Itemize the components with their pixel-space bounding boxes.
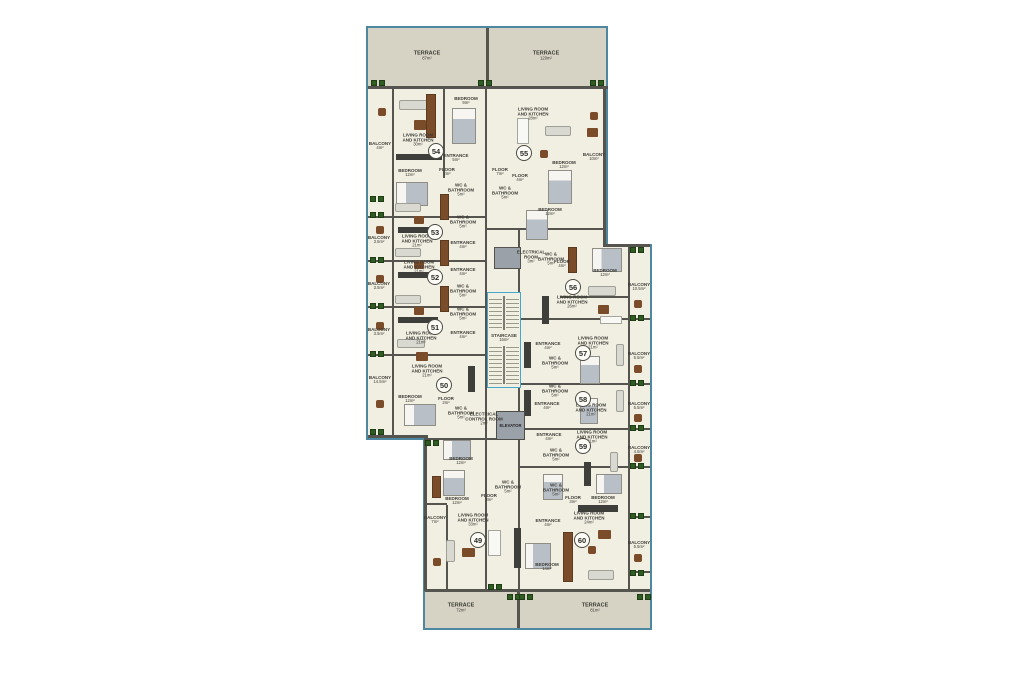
chair [376, 400, 384, 408]
boundary-line [650, 244, 652, 630]
chair [634, 365, 642, 373]
plant-icon [433, 440, 439, 446]
boundary-line [423, 628, 652, 630]
sofa [588, 570, 614, 580]
table [416, 352, 428, 361]
plant-icon [378, 257, 384, 263]
room-label: LIVING ROOM AND KITCHEN26m² [553, 294, 591, 309]
kitchen-counter [584, 462, 591, 486]
plant-icon [378, 212, 384, 218]
room-label: BEDROOM12m² [445, 496, 469, 506]
chair [433, 558, 441, 566]
kitchen-counter [524, 390, 531, 416]
unit-number-60: 60 [574, 532, 590, 548]
plant-icon [379, 80, 385, 86]
chair [634, 554, 642, 562]
room-label: WC & BATHROOM5m² [536, 383, 574, 398]
staircase-label: STAIRCASE15m² [491, 333, 517, 343]
sofa [588, 286, 616, 296]
plant-icon [370, 351, 376, 357]
table [598, 530, 611, 539]
wall-segment [603, 88, 606, 246]
fixture [517, 118, 529, 144]
wardrobe [426, 94, 436, 138]
room-label: BEDROOM12m² [591, 495, 615, 505]
plant-icon [630, 380, 636, 386]
chair [634, 414, 642, 422]
wardrobe [440, 240, 449, 266]
room-label: WC & BATHROOM5m² [444, 306, 482, 321]
room-label: BEDROOM12m² [398, 168, 422, 178]
room-label: LIVING ROOM AND KITCHEN24m² [570, 510, 608, 525]
plant-icon [496, 584, 502, 590]
balcony-label: BALCONY5.5m² [628, 401, 650, 411]
plant-icon [371, 80, 377, 86]
core-room-label: ELECTRICAL ROOM3m² [512, 249, 550, 264]
balcony-label: BALCONY3.5m² [368, 235, 390, 245]
balcony-label: BALCONY3.5m² [368, 281, 390, 291]
plant-icon [425, 440, 431, 446]
plant-icon [630, 513, 636, 519]
balcony-label: BALCONY10m² [583, 152, 605, 162]
room-label: WC & BATHROOM5m² [444, 283, 482, 298]
room-label: BEDROOM12m² [398, 394, 422, 404]
table [414, 216, 424, 224]
chair [634, 300, 642, 308]
plant-icon [630, 425, 636, 431]
plant-icon [378, 429, 384, 435]
plant-icon [598, 80, 604, 86]
plant-icon [645, 594, 651, 600]
room-label: ENTRANCE4m² [450, 267, 475, 277]
balcony-label: BALCONY14.5m² [369, 375, 391, 385]
plant-icon [507, 594, 513, 600]
room-label: ENTRANCE5m² [443, 153, 468, 163]
sofa [616, 344, 624, 366]
plant-icon [638, 380, 644, 386]
table [598, 305, 609, 314]
room-label: WC & BATHROOM5m² [486, 185, 524, 200]
plant-icon [519, 594, 525, 600]
unit-number-52: 52 [427, 269, 443, 285]
wall-segment [425, 589, 650, 592]
kitchen-counter [542, 296, 549, 324]
room-label: ENTRANCE4m² [535, 518, 560, 528]
unit-number-53: 53 [427, 224, 443, 240]
wardrobe [432, 476, 441, 498]
plant-icon [638, 463, 644, 469]
unit-number-54: 54 [428, 143, 444, 159]
plant-icon [370, 303, 376, 309]
table [587, 128, 598, 137]
chair [540, 150, 548, 158]
room-label: ENTRANCE4m² [536, 432, 561, 442]
fixture [488, 530, 501, 556]
unit-number-51: 51 [427, 319, 443, 335]
table [462, 548, 475, 557]
room-label: WC & BATHROOM5m² [442, 182, 480, 197]
wall-segment [368, 435, 428, 438]
room-label: ENTRANCE4m² [534, 401, 559, 411]
room-label: BEDROOM12m² [538, 207, 562, 217]
bed [443, 470, 465, 496]
plant-icon [378, 196, 384, 202]
room-label: WC & BATHROOM5m² [537, 447, 575, 462]
sofa [616, 390, 624, 412]
unit-number-56: 56 [565, 279, 581, 295]
sofa [610, 452, 618, 472]
bed [596, 474, 622, 494]
unit-number-55: 55 [516, 145, 532, 161]
room-label: ENTRANCE4m² [450, 330, 475, 340]
table [414, 307, 424, 315]
plant-icon [638, 425, 644, 431]
unit-number-59: 59 [575, 438, 591, 454]
room-label: LIVING ROOM AND KITCHEN28m² [514, 106, 552, 121]
plant-icon [630, 463, 636, 469]
plant-icon [630, 570, 636, 576]
balcony-label: BALCONY10.5m² [628, 282, 650, 292]
room-label: ENTRANCE4m² [535, 341, 560, 351]
wall-segment [486, 28, 489, 88]
kitchen-counter [514, 528, 521, 568]
terrace-label: TERRACE120m² [533, 50, 560, 61]
core-room-label: ELECTRICAL CONTROL ROOM2m² [465, 411, 503, 426]
room-label: WC & BATHROOM5m² [489, 479, 527, 494]
floor-plan: ELEVATOR TERRACE87m²TERRACE120m²TERRACE7… [0, 0, 1024, 684]
plant-icon [527, 594, 533, 600]
room-label: BEDROOM12m² [449, 456, 473, 466]
fixture [600, 316, 622, 324]
core-room-label: FLOOR7m² [492, 167, 508, 177]
plant-icon [630, 315, 636, 321]
room-label: BEDROOM12m² [552, 160, 576, 170]
room-label: FLOOR4m² [512, 173, 528, 183]
plant-icon [478, 80, 484, 86]
plant-icon [370, 257, 376, 263]
chair [378, 108, 386, 116]
sofa [395, 203, 421, 212]
room-label: LIVING ROOM AND KITCHEN33m² [454, 512, 492, 527]
plant-icon [486, 80, 492, 86]
sofa [395, 295, 421, 304]
plant-icon [637, 594, 643, 600]
plant-icon [630, 247, 636, 253]
bed [404, 404, 436, 426]
terrace-label: TERRACE72m² [448, 602, 475, 613]
plant-icon [370, 212, 376, 218]
sofa [545, 126, 571, 136]
room-label: BEDROOM9m² [454, 96, 478, 106]
balcony-label: BALCONY3.5m² [368, 327, 390, 337]
balcony-label: BALCONY7m² [424, 515, 446, 525]
table [414, 120, 426, 130]
chair [376, 226, 384, 234]
room-label: BEDROOM12m² [593, 268, 617, 278]
wall-segment [392, 88, 394, 436]
balcony-label: BALCONY5.5m² [628, 540, 650, 550]
kitchen-counter [524, 342, 531, 368]
room-label: FLOOR2m² [439, 167, 455, 177]
sofa [395, 248, 421, 257]
unit-number-58: 58 [575, 391, 591, 407]
unit-number-49: 49 [470, 532, 486, 548]
unit-number-50: 50 [436, 377, 452, 393]
plant-icon [638, 247, 644, 253]
terrace-label: TERRACE81m² [582, 602, 609, 613]
room-label: WC & BATHROOM5m² [444, 214, 482, 229]
wardrobe [563, 532, 573, 582]
boundary-line [606, 26, 608, 246]
chair [588, 546, 596, 554]
plant-icon [370, 196, 376, 202]
plant-icon [590, 80, 596, 86]
bed [548, 170, 572, 204]
plant-icon [638, 513, 644, 519]
plant-icon [378, 303, 384, 309]
plant-icon [378, 351, 384, 357]
wall-segment [426, 503, 447, 505]
room-label: BEDROOM14m² [535, 562, 559, 572]
wall-segment [443, 86, 445, 178]
plant-icon [638, 570, 644, 576]
terrace-label: TERRACE87m² [414, 50, 441, 61]
plant-icon [638, 315, 644, 321]
bed [452, 108, 476, 144]
balcony-label: BALCONY5.5m² [628, 351, 650, 361]
unit-number-57: 57 [575, 345, 591, 361]
room-label: ENTRANCE4m² [450, 240, 475, 250]
room-label: LIVING ROOM AND KITCHEN21m² [408, 363, 446, 378]
balcony-label: BALCONY4m² [369, 141, 391, 151]
sofa [399, 100, 429, 110]
plant-icon [488, 584, 494, 590]
wall-segment [424, 436, 427, 591]
balcony-label: BALCONY4.5m² [628, 445, 650, 455]
boundary-line [366, 438, 427, 440]
sofa [446, 540, 455, 562]
room-label: WC & BATHROOM5m² [537, 482, 575, 497]
plant-icon [370, 429, 376, 435]
room-label: WC & BATHROOM5m² [536, 355, 574, 370]
chair [590, 112, 598, 120]
kitchen-counter [468, 366, 475, 392]
chair [634, 454, 642, 462]
